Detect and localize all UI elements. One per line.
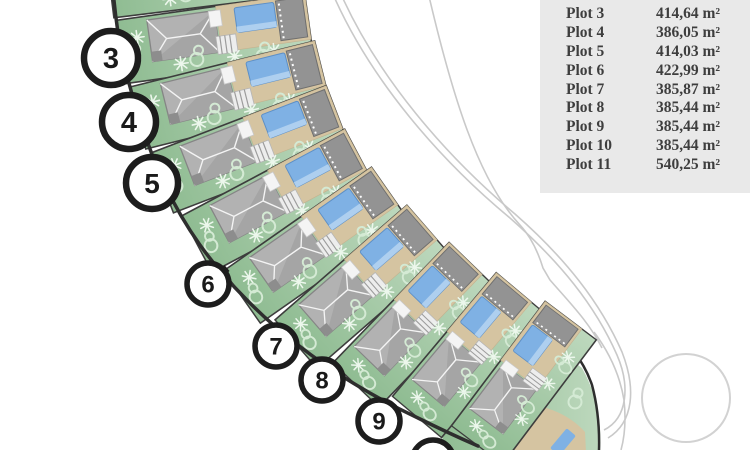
legend-row: Plot 11 540,25 m²: [566, 156, 750, 175]
legend-row: Plot 6 422,99 m²: [566, 62, 750, 81]
marker-label: 4: [121, 107, 137, 139]
legend-plot-area: 385,44 m²: [656, 137, 750, 156]
legend-row: Plot 5 414,03 m²: [566, 43, 750, 62]
marker-label: 6: [201, 272, 214, 299]
legend-plot-area: 540,25 m²: [656, 156, 750, 175]
legend-row: Plot 7 385,87 m²: [566, 81, 750, 100]
legend-plot-label: Plot 7: [566, 81, 656, 100]
marker-plot-5: 5: [126, 157, 178, 209]
legend-plot-area: 385,87 m²: [656, 81, 750, 100]
legend-row: Plot 4 386,05 m²: [566, 24, 750, 43]
legend-plot-area: 414,64 m²: [656, 5, 750, 24]
legend-plot-area: 385,44 m²: [656, 99, 750, 118]
legend-plot-label: Plot 5: [566, 43, 656, 62]
marker-plot-3: 3: [84, 31, 138, 85]
legend-plot-area: 386,05 m²: [656, 24, 750, 43]
legend-row: Plot 10 385,44 m²: [566, 137, 750, 156]
legend-plot-area: 414,03 m²: [656, 43, 750, 62]
legend-plot-area: 422,99 m²: [656, 62, 750, 81]
marker-label: 3: [103, 43, 119, 75]
roundabout: [642, 354, 730, 442]
legend-plot-label: Plot 10: [566, 137, 656, 156]
legend-row: Plot 8 385,44 m²: [566, 99, 750, 118]
legend-plot-label: Plot 3: [566, 5, 656, 24]
legend-plot-label: Plot 4: [566, 24, 656, 43]
marker-plot-6: 6: [187, 263, 229, 305]
marker-plot-7: 7: [255, 325, 297, 367]
marker-label: 7: [269, 334, 282, 361]
marker-label: 5: [144, 168, 160, 199]
legend-plot-label: Plot 8: [566, 99, 656, 118]
plot-area-legend: Plot 3 414,64 m² Plot 4 386,05 m² Plot 5…: [540, 0, 750, 193]
legend-plot-label: Plot 11: [566, 156, 656, 175]
marker-plot-8: 8: [301, 359, 343, 401]
legend-row: Plot 3 414,64 m²: [566, 5, 750, 24]
marker-label: 8: [315, 368, 328, 395]
legend-plot-area: 385,44 m²: [656, 118, 750, 137]
legend-plot-label: Plot 9: [566, 118, 656, 137]
legend-plot-label: Plot 6: [566, 62, 656, 81]
marker-label: 9: [372, 409, 385, 436]
marker-plot-9: 9: [358, 400, 400, 442]
marker-plot-4: 4: [102, 95, 156, 149]
site-plan-page: 3 4 5 6 7: [0, 0, 750, 450]
legend-row: Plot 9 385,44 m²: [566, 118, 750, 137]
